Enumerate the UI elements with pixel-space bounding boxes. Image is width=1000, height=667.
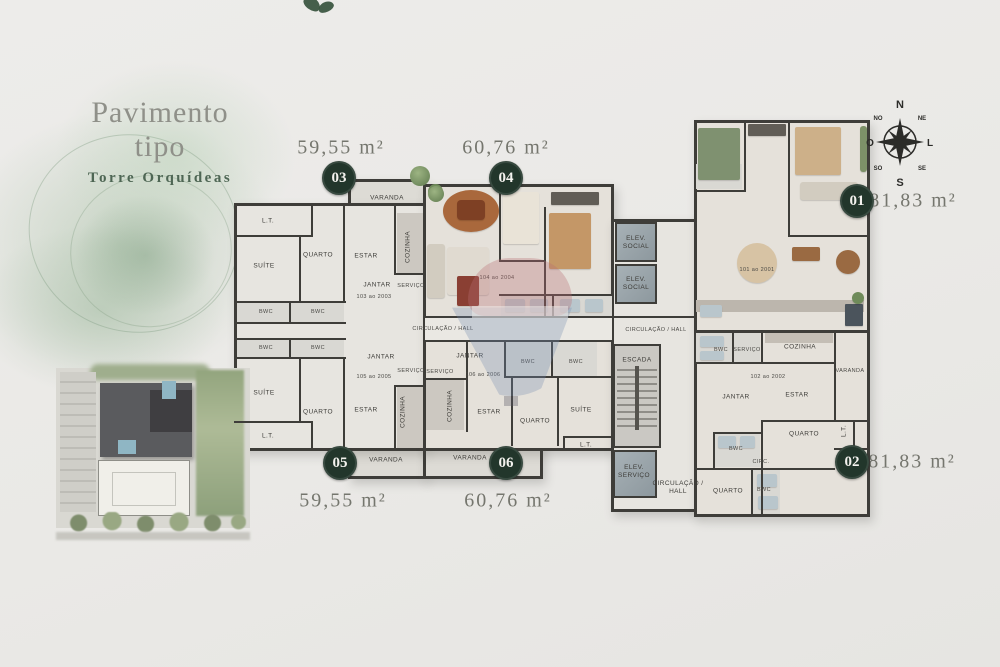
room-label-estar: ESTAR <box>785 392 808 399</box>
wall <box>299 235 301 303</box>
furniture-patio-table <box>836 250 860 274</box>
page-subtitle: Torre Orquídeas <box>70 170 250 187</box>
compass-se: SE <box>918 166 926 172</box>
room-label-l-t-: L.T. <box>262 433 274 440</box>
wall <box>563 436 614 438</box>
site-parking <box>60 372 96 512</box>
compass-so: SO <box>874 166 883 172</box>
room-label-bwc: BWC <box>521 359 535 365</box>
wall <box>504 376 614 378</box>
wall <box>343 357 345 451</box>
wall <box>394 203 396 273</box>
room-label-cozinha: COZINHA <box>784 344 816 351</box>
furniture-sink <box>700 305 722 317</box>
room-label-102-ao-2002: 102 ao 2002 <box>751 374 786 380</box>
unit-badge-03: 03 <box>322 161 356 195</box>
furniture-bed <box>795 127 841 175</box>
area-label-unit-05: 59,55 m² <box>299 490 387 513</box>
wall <box>713 432 761 434</box>
room-label-varanda: VARANDA <box>369 457 403 464</box>
unit-badge-01: 01 <box>840 184 874 218</box>
room-label-cozinha: COZINHA <box>405 231 412 263</box>
room-label-bwc: BWC <box>729 446 743 452</box>
furniture-fixture <box>757 474 777 487</box>
compass-s: S <box>896 177 903 189</box>
furniture-bed <box>698 128 740 180</box>
furniture-dining-table-round <box>737 243 777 283</box>
unit-badge-05: 05 <box>323 446 357 480</box>
watercolor-blob <box>75 195 215 315</box>
site-pool <box>118 440 136 454</box>
room-label-bwc: BWC <box>311 309 325 315</box>
room-label-104-ao-2004: 104 ao 2004 <box>480 275 515 281</box>
room-label-circula-o-hall: CIRCULAÇÃO / HALL <box>412 326 473 332</box>
wall <box>394 385 426 387</box>
wall <box>423 340 614 342</box>
unit-badge-04: 04 <box>489 161 523 195</box>
room-label-circula-o-hall: CIRCULAÇÃO / HALL <box>649 480 707 496</box>
site-hedge-row <box>60 512 246 534</box>
area-label-unit-04: 60,76 m² <box>462 137 550 160</box>
leaf-decoration <box>317 0 336 15</box>
compass-l: L <box>927 138 933 149</box>
room-label-bwc: BWC <box>259 345 273 351</box>
wall <box>299 357 301 423</box>
wall <box>761 420 868 422</box>
unit-badge-02: 02 <box>835 445 869 479</box>
wall <box>694 330 870 333</box>
wall <box>234 235 313 237</box>
wall <box>234 421 313 423</box>
compass-no: NO <box>874 116 883 122</box>
room-label-servi-o: SERVIÇO <box>733 347 760 353</box>
room-label-jantar: JANTAR <box>367 354 394 361</box>
furniture-dining-table <box>457 276 479 306</box>
room-label-varanda: VARANDA <box>453 455 487 462</box>
wall <box>423 378 466 380</box>
room-label-servi-o: SERVIÇO <box>397 283 424 289</box>
room-label-l-t-: L.T. <box>580 442 592 449</box>
wall <box>694 468 835 470</box>
room-label-circ-: CIRC. <box>753 459 770 465</box>
room-label-bwc: BWC <box>714 347 728 353</box>
room-label-l-t-: L.T. <box>841 425 848 437</box>
room-label-quarto: QUARTO <box>303 252 333 259</box>
wall <box>552 294 554 316</box>
compass-rose: N S L O NO NE SO SE <box>864 94 936 195</box>
room-label-circula-o-hall: CIRCULAÇÃO / HALL <box>625 327 686 333</box>
room-label-105-ao-2005: 105 ao 2005 <box>357 374 392 380</box>
wall <box>761 330 763 364</box>
wall <box>311 203 313 237</box>
room-label-quarto: QUARTO <box>713 488 743 495</box>
unit-badge-06: 06 <box>489 446 523 480</box>
wall <box>551 340 553 378</box>
room-label-elev-servi-o: ELEV. SERVIÇO <box>614 464 654 480</box>
furniture-fixture <box>700 336 724 347</box>
wall <box>557 376 559 446</box>
area-label-unit-02: 81,83 m² <box>868 451 956 474</box>
room-label-elev-social: ELEV. SOCIAL <box>619 235 653 251</box>
wall <box>713 432 715 468</box>
kitchen-counter <box>426 380 464 430</box>
wall <box>394 273 426 275</box>
room-label-servi-o: SERVIÇO <box>426 369 453 375</box>
wall <box>499 294 614 296</box>
room-label-bwc: BWC <box>569 359 583 365</box>
furniture-fixture <box>505 299 525 312</box>
room-label-elev-social: ELEV. SOCIAL <box>619 276 653 292</box>
site-plan-thumbnail <box>56 360 250 544</box>
room-label-quarto: QUARTO <box>520 418 550 425</box>
compass-o: O <box>866 138 874 149</box>
room-label-varanda: VARANDA <box>836 368 865 374</box>
area-label-unit-03: 59,55 m² <box>297 137 385 160</box>
stair-rail <box>635 366 639 430</box>
room-label-jantar: JANTAR <box>363 282 390 289</box>
site-path <box>56 532 250 540</box>
wall <box>394 385 396 451</box>
wall <box>499 184 501 262</box>
furniture-bed <box>503 192 539 244</box>
room-label-jantar: JANTAR <box>722 394 749 401</box>
room-label-su-te: SUÍTE <box>253 263 274 270</box>
tree-icon <box>410 166 430 186</box>
room-label-varanda: VARANDA <box>370 195 404 202</box>
room-label-su-te: SUÍTE <box>253 390 274 397</box>
wall <box>611 316 697 318</box>
wall <box>744 120 746 192</box>
wall <box>499 260 546 262</box>
room-label-bwc: BWC <box>259 309 273 315</box>
floorplan-poster: Pavimento tipo Torre Orquídeas 59,55 m² … <box>0 0 1000 667</box>
furniture-wardrobe <box>551 192 599 205</box>
room-label-bwc: BWC <box>757 487 771 493</box>
furniture-table <box>457 200 485 220</box>
furniture-wardrobe <box>748 124 786 136</box>
wall <box>788 120 790 237</box>
area-label-unit-06: 60,76 m² <box>464 490 552 513</box>
compass-ne: NE <box>918 116 926 122</box>
site-pool <box>162 381 176 399</box>
room-label-jantar: JANTAR <box>456 353 483 360</box>
wall <box>563 436 565 451</box>
wall <box>311 421 313 451</box>
furniture-sofa <box>427 244 445 298</box>
kitchen-counter <box>765 333 833 343</box>
furniture-plant <box>852 292 864 304</box>
compass-n: N <box>896 99 904 111</box>
furniture-fixture <box>585 299 603 312</box>
furniture-appliance <box>845 304 863 326</box>
furniture-desk <box>792 247 820 261</box>
room-label-106-ao-2006: 106 ao 2006 <box>466 372 501 378</box>
furniture-bed <box>549 213 591 269</box>
room-label-l-t-: L.T. <box>262 218 274 225</box>
room-label-cozinha: COZINHA <box>400 396 407 428</box>
furniture-fixture <box>560 299 580 312</box>
room-label-101-ao-2001: 101 ao 2001 <box>740 267 775 273</box>
wall <box>694 362 835 364</box>
room-label-bwc: BWC <box>311 345 325 351</box>
wall <box>751 468 753 517</box>
tree-icon <box>428 186 444 202</box>
wall <box>788 235 870 237</box>
room-label-estar: ESTAR <box>354 253 377 260</box>
wall <box>834 330 836 422</box>
room-label-servi-o: SERVIÇO <box>397 368 424 374</box>
room-label-su-te: SUÍTE <box>570 407 591 414</box>
room-label-103-ao-2003: 103 ao 2003 <box>357 294 392 300</box>
wall <box>289 338 291 359</box>
site-greenery <box>90 364 210 380</box>
room-label-escada: ESCADA <box>622 357 651 364</box>
wall <box>694 190 746 192</box>
site-tower-detail <box>112 472 176 506</box>
title-block: Pavimento tipo Torre Orquídeas <box>70 96 250 187</box>
room-label-quarto: QUARTO <box>303 409 333 416</box>
page-title: Pavimento tipo <box>70 96 250 164</box>
wall <box>289 301 291 324</box>
wall <box>343 203 345 303</box>
room-label-cozinha: COZINHA <box>447 390 454 422</box>
wall <box>504 340 506 378</box>
wall <box>423 316 614 318</box>
room-label-quarto: QUARTO <box>789 431 819 438</box>
watercolor-ring <box>56 160 246 342</box>
site-greenery <box>196 370 244 516</box>
wall <box>511 376 513 446</box>
room-label-estar: ESTAR <box>477 409 500 416</box>
room-label-estar: ESTAR <box>354 407 377 414</box>
